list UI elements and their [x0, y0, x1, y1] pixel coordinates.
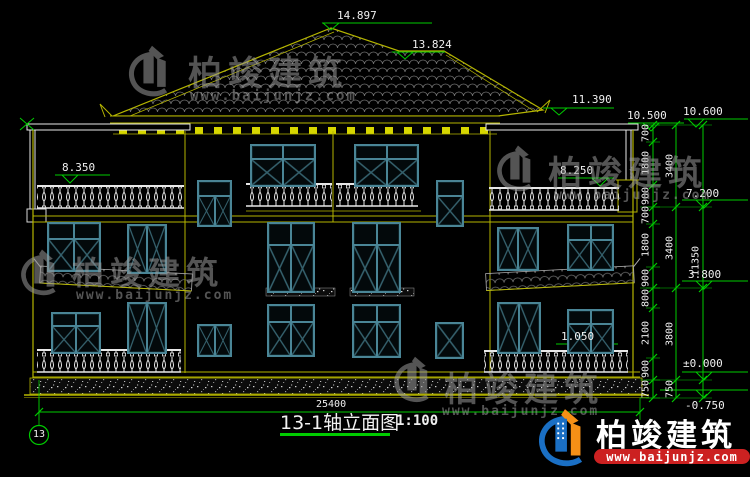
- dim-label: 700: [641, 206, 652, 224]
- window: [267, 222, 315, 293]
- elevation-label-wing-slab: 10.500: [627, 109, 667, 122]
- window: [47, 222, 101, 272]
- drawing-title: 13-1轴立面图: [280, 408, 399, 435]
- dim-label: 1800: [641, 151, 652, 175]
- dim-label: 900: [641, 187, 652, 205]
- elevation-label-roof-eave: 11.390: [572, 93, 612, 106]
- dim-label-total-height: 11350: [691, 246, 702, 276]
- brand-logo-icon: [536, 406, 594, 476]
- dim-label: 900: [641, 269, 652, 287]
- window: [197, 180, 232, 227]
- hip-roof: [100, 28, 550, 117]
- drawing-scale: 1:100: [396, 413, 438, 429]
- elevation-label-rail-right: 8.250: [560, 164, 593, 177]
- dim-label: 700: [641, 124, 652, 142]
- elevation-label-window-sill: 1.050: [561, 330, 594, 343]
- building-outline: [33, 130, 640, 378]
- door: [497, 302, 541, 354]
- dim-label: 1800: [641, 233, 652, 257]
- window: [250, 144, 316, 187]
- axis-bubble: 13: [31, 429, 47, 440]
- dim-label: 900: [641, 360, 652, 378]
- window: [352, 222, 401, 293]
- window: [567, 224, 614, 271]
- dim-label: 750: [665, 380, 676, 398]
- dim-label: 3800: [665, 322, 676, 346]
- cad-canvas: 14.897 13.824 11.390 10.500 10.600 8.350…: [0, 0, 750, 477]
- door: [127, 224, 167, 274]
- elevation-label-third-floor: 7.200: [686, 187, 719, 200]
- dim-label: 2100: [641, 321, 652, 345]
- plinth-and-ground: [24, 288, 649, 398]
- dim-label: 800: [641, 289, 652, 307]
- elevation-label-roof-apex: 14.897: [337, 9, 377, 22]
- logo-url: www.baijunjz.com: [594, 449, 750, 464]
- window: [497, 227, 539, 271]
- window: [436, 180, 464, 227]
- window: [51, 312, 101, 354]
- title-underline: [280, 433, 390, 436]
- elevation-label-roof-ridge: 13.824: [412, 38, 452, 51]
- dim-label: 750: [641, 380, 652, 398]
- dim-label: 3400: [665, 154, 676, 178]
- window: [435, 322, 464, 359]
- window: [352, 304, 401, 358]
- window: [354, 144, 419, 187]
- window: [267, 304, 315, 357]
- brand-logo: 柏竣建筑 www.baijunjz.com: [536, 404, 750, 477]
- door: [127, 302, 167, 354]
- elevation-label-parapet-top: 10.600: [683, 105, 723, 118]
- window: [197, 324, 232, 357]
- dim-label: 3400: [665, 236, 676, 260]
- elevation-label-ground-floor: ±0.000: [683, 357, 723, 370]
- elevation-label-rail-left: 8.350: [62, 161, 95, 174]
